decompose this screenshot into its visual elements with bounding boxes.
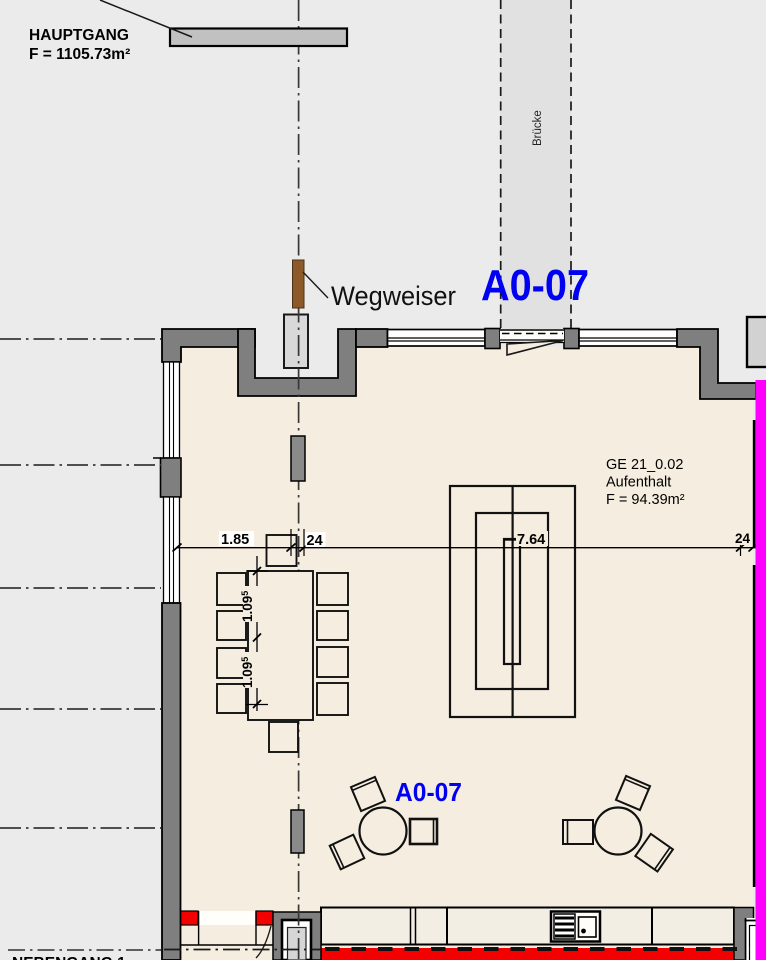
- svg-text:Aufenthalt: Aufenthalt: [606, 475, 671, 491]
- svg-text:7.64: 7.64: [517, 532, 545, 548]
- svg-text:Wegweiser: Wegweiser: [331, 281, 456, 311]
- svg-text:NEBENGANG 1: NEBENGANG 1: [12, 955, 126, 960]
- svg-text:F = 1105.73m²: F = 1105.73m²: [29, 46, 130, 63]
- svg-text:GE 21_0.02: GE 21_0.02: [606, 457, 683, 473]
- svg-text:24: 24: [307, 533, 323, 549]
- svg-text:1.85: 1.85: [221, 532, 249, 548]
- svg-text:HAUPTGANG: HAUPTGANG: [29, 27, 129, 44]
- svg-text:A0-07: A0-07: [395, 777, 462, 807]
- svg-text:A0-07: A0-07: [481, 261, 589, 310]
- svg-text:F = 94.39m²: F = 94.39m²: [606, 492, 685, 508]
- svg-text:Brücke: Brücke: [532, 110, 544, 146]
- svg-text:24: 24: [735, 531, 751, 546]
